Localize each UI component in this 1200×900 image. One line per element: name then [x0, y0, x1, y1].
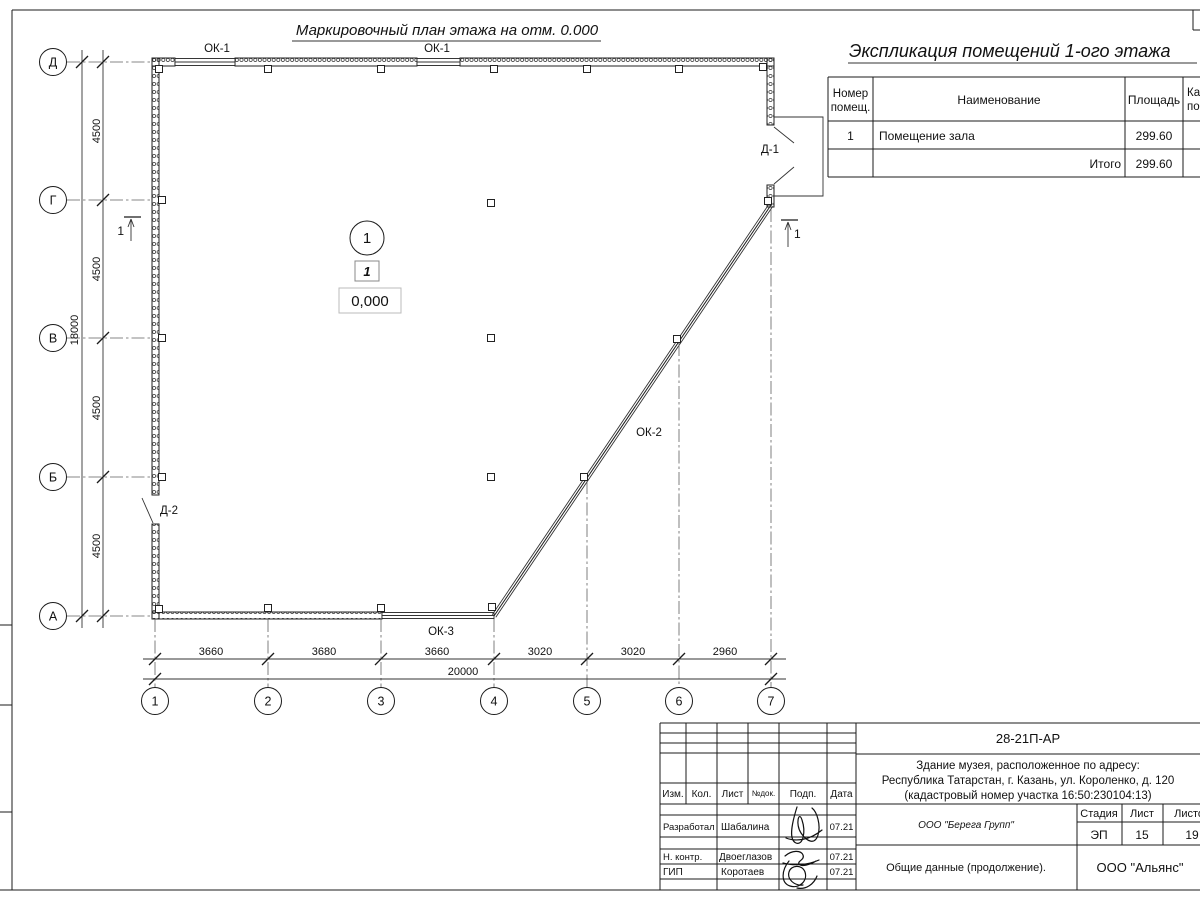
axis-col-4: 4	[491, 695, 498, 709]
cell-room-name: Помещение зала	[879, 129, 975, 143]
window-ok2-diagonal	[492, 204, 773, 617]
room-number: 1	[363, 230, 371, 247]
axis-row-d: Д	[49, 56, 58, 70]
tb-address-line3: (кадастровый номер участка 16:50:230104:…	[904, 790, 1151, 802]
dim-left-4: 4500	[91, 534, 103, 558]
axis-col-5: 5	[584, 695, 591, 709]
tb-stage-value: ЭП	[1090, 828, 1107, 842]
tb-col-list: Лист	[722, 789, 744, 800]
cell-room-number: 1	[847, 129, 854, 143]
axis-lines	[67, 62, 771, 687]
dim-bottom-3: 3660	[425, 646, 449, 658]
col-header-number-l2: помещ.	[831, 102, 871, 114]
axis-row-v: В	[49, 332, 57, 346]
tb-address-line2: Республика Татарстан, г. Казань, ул. Кор…	[882, 775, 1175, 787]
title-block: Изм. Кол. Лист №док. Подп. Дата Разработ…	[660, 723, 1200, 890]
col-header-area: Площадь	[1128, 93, 1180, 107]
tb-role: Н. контр.	[663, 852, 702, 863]
tb-stage-label: Стадия	[1080, 808, 1118, 820]
tb-sign-row-gip: ГИП Коротаев 07.21	[663, 867, 853, 878]
wall-top-segment	[235, 58, 417, 66]
section-left-label: 1	[117, 224, 124, 238]
tb-name: Двоеглазов	[719, 852, 772, 863]
tb-role: ГИП	[663, 867, 683, 878]
wall-left-upper	[152, 58, 159, 495]
dim-left-1: 4500	[91, 119, 103, 143]
label-ok3: ОК-3	[428, 626, 454, 638]
room-markers: 1 1 0,000	[339, 221, 401, 313]
sheet-frame	[0, 10, 1200, 890]
section-mark-left: 1	[117, 217, 141, 241]
axis-row-g: Г	[50, 194, 57, 208]
dim-bottom-2: 3680	[312, 646, 336, 658]
tb-name: Шабалина	[721, 821, 770, 833]
tb-address-line1: Здание музея, расположенное по адресу:	[916, 760, 1140, 772]
door-d1-leaf	[774, 127, 794, 143]
dim-bottom-5: 3020	[621, 646, 645, 658]
tb-role: Разработал	[663, 822, 715, 833]
door-d1-leaf	[774, 167, 794, 184]
label-ok1-a: ОК-1	[204, 43, 230, 55]
tb-sign-row-ncontrol: Н. контр. Двоеглазов 07.21	[663, 852, 853, 863]
dimensions-bottom: 3660 3680 3660 3020 3020 2960 20000	[143, 646, 786, 685]
tb-col-kol: Кол.	[692, 789, 712, 800]
drawing-sheet: Маркировочный план этажа на отм. 0.000	[0, 0, 1200, 900]
wall-left-lower	[152, 524, 159, 619]
axis-row-b: Б	[49, 471, 57, 485]
label-d2: Д-2	[160, 505, 178, 517]
signature-developer	[786, 807, 822, 843]
total-label: Итого	[1090, 157, 1122, 171]
axis-bubbles-bottom: 1 2 3 4 5 6 7	[142, 688, 785, 715]
total-area: 299.60	[1136, 157, 1173, 171]
dim-left-3: 4500	[91, 396, 103, 420]
element-labels: ОК-1 ОК-1 ОК-2 ОК-3 Д-1 Д-2	[160, 43, 779, 638]
tb-name: Коротаев	[721, 867, 764, 878]
vestibule	[774, 117, 823, 196]
tb-sheet-value: 15	[1135, 828, 1149, 842]
dim-bottom-6: 2960	[713, 646, 737, 658]
plan-title-text: Маркировочный план этажа на отм. 0.000	[296, 22, 599, 39]
axis-col-3: 3	[378, 695, 385, 709]
tb-sheet-label: Лист	[1130, 808, 1154, 820]
label-d1: Д-1	[761, 144, 779, 156]
label-ok2: ОК-2	[636, 427, 662, 439]
axis-col-7: 7	[768, 695, 775, 709]
tb-doc-number: 28-21П-АР	[996, 731, 1060, 746]
tb-date: 07.21	[830, 852, 854, 863]
tb-col-ndok: №док.	[752, 789, 775, 798]
explication: Экспликация помещений 1-ого этажа Номер …	[828, 41, 1200, 177]
cell-room-area: 299.60	[1136, 129, 1173, 143]
dim-left-2: 4500	[91, 257, 103, 281]
plan-title: Маркировочный план этажа на отм. 0.000	[292, 22, 601, 41]
column-markers	[156, 64, 772, 613]
tb-company: ООО "Берега Групп"	[918, 820, 1014, 831]
table-row: 1 Помещение зала 299.60	[847, 129, 1173, 143]
dimensions-left: 4500 4500 4500 4500 18000	[69, 50, 109, 628]
axis-col-6: 6	[676, 695, 683, 709]
section-right-label: 1	[794, 227, 801, 241]
tb-doc-title: Общие данные (продолжение).	[886, 862, 1046, 874]
axis-row-a: А	[49, 610, 58, 624]
wall-right-upper	[767, 58, 774, 125]
dim-bottom-4: 3020	[528, 646, 552, 658]
axis-bubbles-left: Д Г В Б А	[40, 49, 67, 630]
col-header-name: Наименование	[957, 93, 1041, 107]
col-header-cat-l2: по	[1187, 101, 1200, 113]
door-d2-leaf	[142, 498, 153, 523]
elevation-value: 0,000	[351, 293, 389, 310]
tb-sheets-value: 19	[1185, 828, 1199, 842]
dim-left-total: 18000	[69, 315, 81, 346]
col-header-number-l1: Номер	[833, 88, 868, 100]
tb-col-podp: Подп.	[790, 789, 817, 800]
label-ok1-b: ОК-1	[424, 43, 450, 55]
tb-col-data: Дата	[830, 789, 853, 800]
wall-bottom	[152, 612, 382, 619]
table-total-row: Итого 299.60	[1090, 157, 1173, 171]
tb-company2: ООО "Альянс"	[1097, 860, 1184, 875]
axis-col-1: 1	[152, 695, 159, 709]
tb-col-izm: Изм.	[662, 789, 683, 800]
col-header-cat-l1: Ка	[1187, 87, 1200, 99]
axis-col-2: 2	[265, 695, 272, 709]
signature-ncontrol	[783, 851, 819, 865]
walls	[142, 58, 823, 619]
dim-bottom-1: 3660	[199, 646, 223, 658]
wall-top-segment	[460, 58, 774, 66]
tb-sheets-label: Листов	[1174, 808, 1200, 820]
tb-sign-row-developer: Разработал Шабалина 07.21	[663, 821, 853, 833]
drawing-canvas: Маркировочный план этажа на отм. 0.000	[0, 0, 1200, 900]
dim-bottom-total: 20000	[448, 666, 479, 678]
tb-date: 07.21	[830, 867, 854, 878]
explication-title: Экспликация помещений 1-ого этажа	[849, 41, 1171, 61]
room-tag: 1	[363, 264, 370, 279]
tb-date: 07.21	[830, 822, 854, 833]
section-mark-right: 1	[781, 220, 801, 247]
